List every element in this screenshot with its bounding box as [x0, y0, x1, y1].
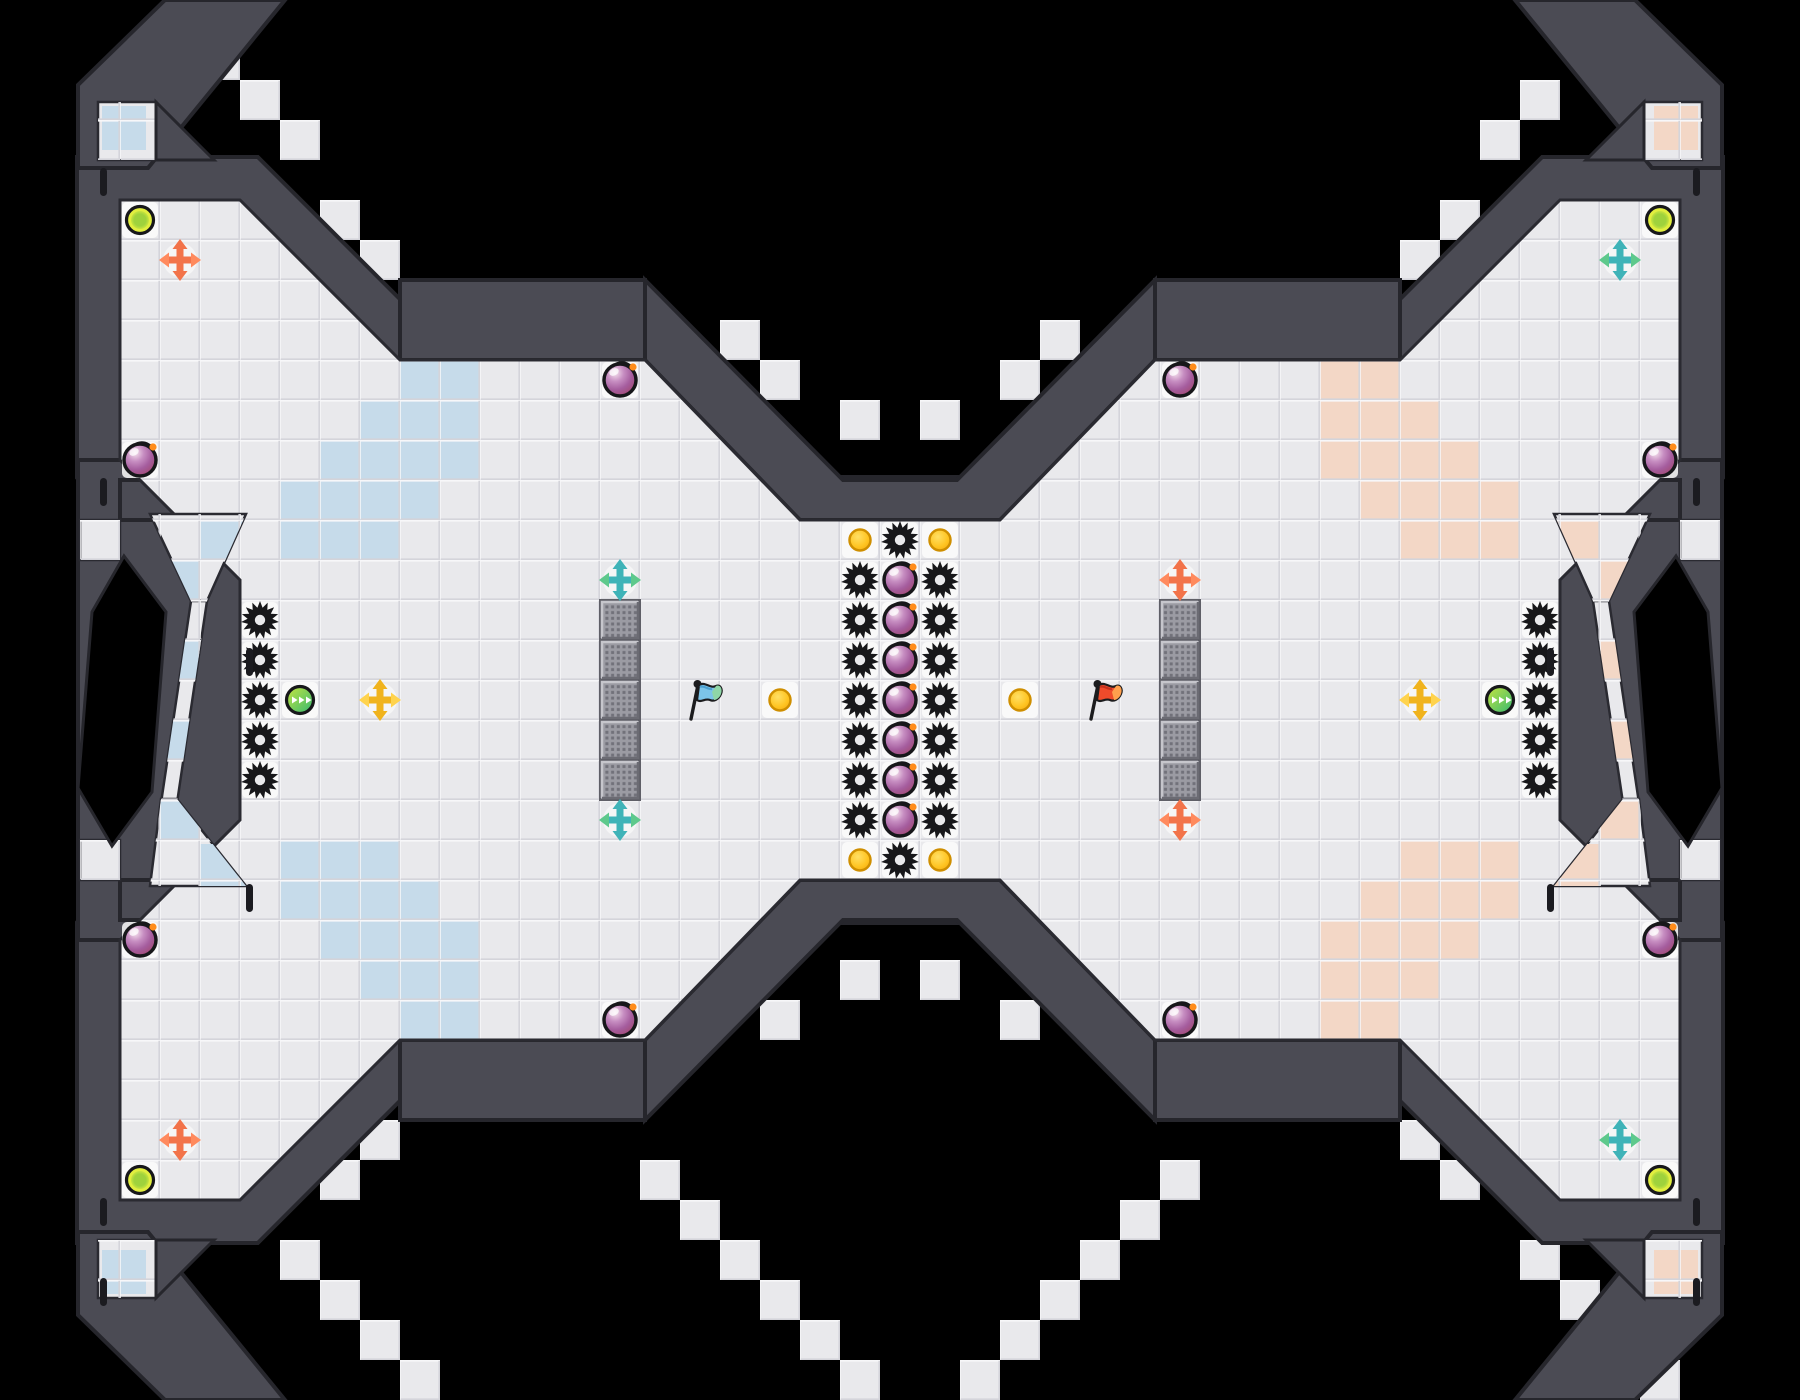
game-map	[0, 0, 1800, 1400]
bomb-icon[interactable]	[882, 802, 918, 838]
bomb-icon[interactable]	[882, 642, 918, 678]
wall-band-top-left	[400, 280, 645, 360]
spike-icon[interactable]	[1521, 761, 1559, 799]
gold-dot-icon[interactable]	[1002, 682, 1038, 718]
powerup-green-chevron-icon[interactable]	[282, 682, 318, 718]
spike-icon[interactable]	[881, 521, 919, 559]
spike-icon[interactable]	[881, 841, 919, 879]
powerup-yellow-green-icon[interactable]	[1642, 1162, 1678, 1198]
spike-icon[interactable]	[921, 561, 959, 599]
wall-band-top-right	[1155, 280, 1400, 360]
spike-icon[interactable]	[241, 761, 279, 799]
spike-icon[interactable]	[841, 721, 879, 759]
gold-dot-icon[interactable]	[842, 522, 878, 558]
wall-band-bottom-right	[1155, 1040, 1400, 1120]
gold-dot-icon[interactable]	[922, 522, 958, 558]
gold-dot-icon[interactable]	[762, 682, 798, 718]
spike-icon[interactable]	[841, 641, 879, 679]
spike-icon[interactable]	[921, 721, 959, 759]
powerup-yellow-green-icon[interactable]	[1642, 202, 1678, 238]
spike-icon[interactable]	[841, 681, 879, 719]
spike-icon[interactable]	[241, 721, 279, 759]
spike-icon[interactable]	[241, 681, 279, 719]
spike-icon[interactable]	[921, 601, 959, 639]
spike-icon[interactable]	[921, 801, 959, 839]
bomb-icon[interactable]	[602, 362, 638, 398]
spike-icon[interactable]	[921, 761, 959, 799]
spike-icon[interactable]	[1521, 721, 1559, 759]
bomb-icon[interactable]	[882, 562, 918, 598]
spike-icon[interactable]	[841, 601, 879, 639]
bomb-icon[interactable]	[122, 922, 158, 958]
bomb-icon[interactable]	[882, 722, 918, 758]
map-canvas	[0, 0, 1800, 1400]
bomb-icon[interactable]	[882, 602, 918, 638]
spike-icon[interactable]	[241, 601, 279, 639]
gate-right[interactable]	[1160, 600, 1200, 800]
spike-icon[interactable]	[841, 561, 879, 599]
bomb-icon[interactable]	[1642, 922, 1678, 958]
spike-icon[interactable]	[1521, 601, 1559, 639]
gold-dot-icon[interactable]	[842, 842, 878, 878]
spike-icon[interactable]	[921, 681, 959, 719]
bomb-icon[interactable]	[882, 682, 918, 718]
gate-left[interactable]	[600, 600, 640, 800]
spike-icon[interactable]	[1521, 681, 1559, 719]
bomb-icon[interactable]	[122, 442, 158, 478]
bomb-icon[interactable]	[1162, 1002, 1198, 1038]
powerup-green-chevron-icon[interactable]	[1482, 682, 1518, 718]
spike-icon[interactable]	[841, 801, 879, 839]
gold-dot-icon[interactable]	[922, 842, 958, 878]
bomb-icon[interactable]	[1162, 362, 1198, 398]
bomb-icon[interactable]	[1642, 442, 1678, 478]
spike-icon[interactable]	[921, 641, 959, 679]
powerup-yellow-green-icon[interactable]	[122, 1162, 158, 1198]
bomb-icon[interactable]	[602, 1002, 638, 1038]
bomb-icon[interactable]	[882, 762, 918, 798]
powerup-yellow-green-icon[interactable]	[122, 202, 158, 238]
wall-band-bottom-left	[400, 1040, 645, 1120]
spike-icon[interactable]	[841, 761, 879, 799]
